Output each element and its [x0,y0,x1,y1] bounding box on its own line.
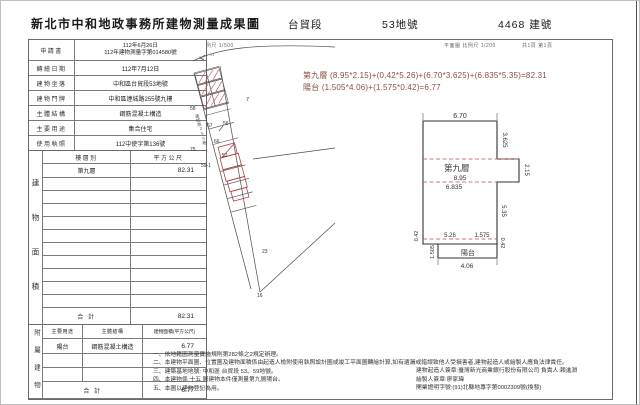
area-empty-row [43,217,131,230]
measure-dashed-lines [423,159,519,239]
area-empty-row [43,230,131,243]
annex-empty-row [43,368,83,382]
info-label: 轉繪日期 [29,61,75,76]
area-table-side-label: 建物面積 [30,159,41,317]
area-table-side-label-cell: 建物面積 [29,151,43,325]
info-label: 建物門牌 [29,91,75,106]
license-number-line: 開業證明字號:(91)北縣地專字第0002309號(換發) [416,384,577,393]
parcel-label-50: 50 [199,55,204,60]
dim-right-small: 0.42 [499,238,505,249]
parcel-label-59-1: 59-1 [201,163,211,169]
parcel-label-58: 58 [190,106,196,112]
lot-number-label: 53地號 [382,17,419,32]
parcel-label-23: 23 [262,249,268,255]
land-section-label: 台貿段 [288,17,323,32]
info-value-line1: 112年6月26日 [123,43,158,50]
area-total-label: 合 計 [43,308,131,325]
info-label: 主要用途 [29,121,75,136]
annex-empty-row [83,354,143,368]
area-empty-row [43,282,131,295]
area-empty-row [43,256,131,269]
building-number-label: 4468 建號 [498,17,552,32]
info-label: 主體結構 [29,106,75,121]
dim-bottom-2: 1.575 [474,233,490,239]
area-floor-cell: 第九層 [43,164,131,178]
site-plan: 連城路255巷 50 51 58 7 67 56 66 52 75 59-1 2… [177,39,342,339]
document-title: 新北市中和地政事務所建物測量成果圖 [31,15,261,32]
dim-balcony-height: 1.505 [430,245,436,259]
area-empty-row [43,178,131,191]
annex-empty-row [83,368,143,382]
info-value-line2: 112年建物測量字第014580號 [104,50,176,57]
dim-extension: 2.15 [523,164,529,176]
parcel-label-16: 16 [257,293,263,299]
annex-total-label: 合 計 [43,382,143,399]
scan-edge-line [636,1,637,404]
area-empty-row [43,191,131,204]
drafter-signature-line: 繪製人簽章:廖家瑋 [416,376,577,385]
parcel-label-75: 75 [190,147,196,153]
annex-side-label-cell: 附屬建物 [29,325,43,399]
dim-width-1: 8.95 [454,175,467,182]
floor-plan-labels: 6.70 3.625 2.15 第九層 8.95 6.835 5.35 0.42… [414,113,529,270]
subject-building-outline [217,143,250,202]
parcel-label-56: 56 [223,121,229,127]
builder-signature-line: 建物起造人簽章:臺灣新光商業銀行股份有限公司 負責人:賴進淵 [416,367,577,376]
parcel-label-66: 66 [214,139,220,145]
signature-block: 建物起造人簽章:臺灣新光商業銀行股份有限公司 負責人:賴進淵 繪製人簽章:廖家瑋… [416,367,577,393]
dim-bottom-1: 5.26 [444,233,456,239]
annex-use-cell: 陽台 [43,339,83,354]
annex-col-structure-header: 主體結構 [83,325,143,339]
info-label: 使用執照 [29,136,75,151]
floor-room-label: 第九層 [444,163,470,173]
note-line-1: 一、依地籍圖測量實施規則第282條之2規定辦理。 [153,351,613,359]
annex-side-label: 附屬建物 [31,325,41,399]
area-empty-row [43,204,131,217]
parcel-label-51: 51 [210,52,215,57]
dim-top: 6.70 [453,113,467,120]
annex-col-use-header: 主要用途 [43,325,83,339]
dim-width-2: 6.835 [446,184,463,191]
dim-balcony-width: 4.06 [461,263,474,270]
dim-right-top: 3.625 [501,132,507,148]
survey-result-sheet: 新北市中和地政事務所建物測量成果圖 台貿段 53地號 4468 建號 位置圖 比… [0,0,640,405]
area-empty-row [43,269,131,282]
parcel-number-labels: 50 51 58 7 67 56 66 52 75 59-1 23 16 [190,52,268,299]
area-col-floor-header: 樓層別 [43,151,131,164]
area-empty-row [43,295,131,308]
balcony-label: 陽台 [461,248,475,257]
formula-floor9: 第九層 (8.95*2.15)+(0.42*5.26)+(6.70*3.625)… [303,70,611,82]
parcel-label-67: 67 [207,123,213,129]
dim-left-small: 0.42 [414,231,420,242]
site-plan-boundary-lines [193,46,335,292]
annex-structure-cell: 鋼筋混凝土構造 [83,339,143,354]
annex-empty-row [43,354,83,368]
area-formulas: 第九層 (8.95*2.15)+(0.42*5.26)+(6.70*3.625)… [303,70,611,94]
info-label: 建物坐落 [29,76,75,91]
formula-balcony: 陽台 (1.505*4.06)+(1.575*0.42)=6.77 [303,82,611,94]
info-label: 申請書 [29,40,75,61]
parcel-label-52: 52 [222,153,228,159]
area-empty-row [43,243,131,256]
dim-right-low: 5.35 [500,205,506,217]
floor-plan: 6.70 3.625 2.15 第九層 8.95 6.835 5.35 0.42… [394,107,594,282]
existing-buildings [195,67,228,108]
parcel-label-7: 7 [246,97,249,103]
building-hatch-lines [196,68,227,107]
